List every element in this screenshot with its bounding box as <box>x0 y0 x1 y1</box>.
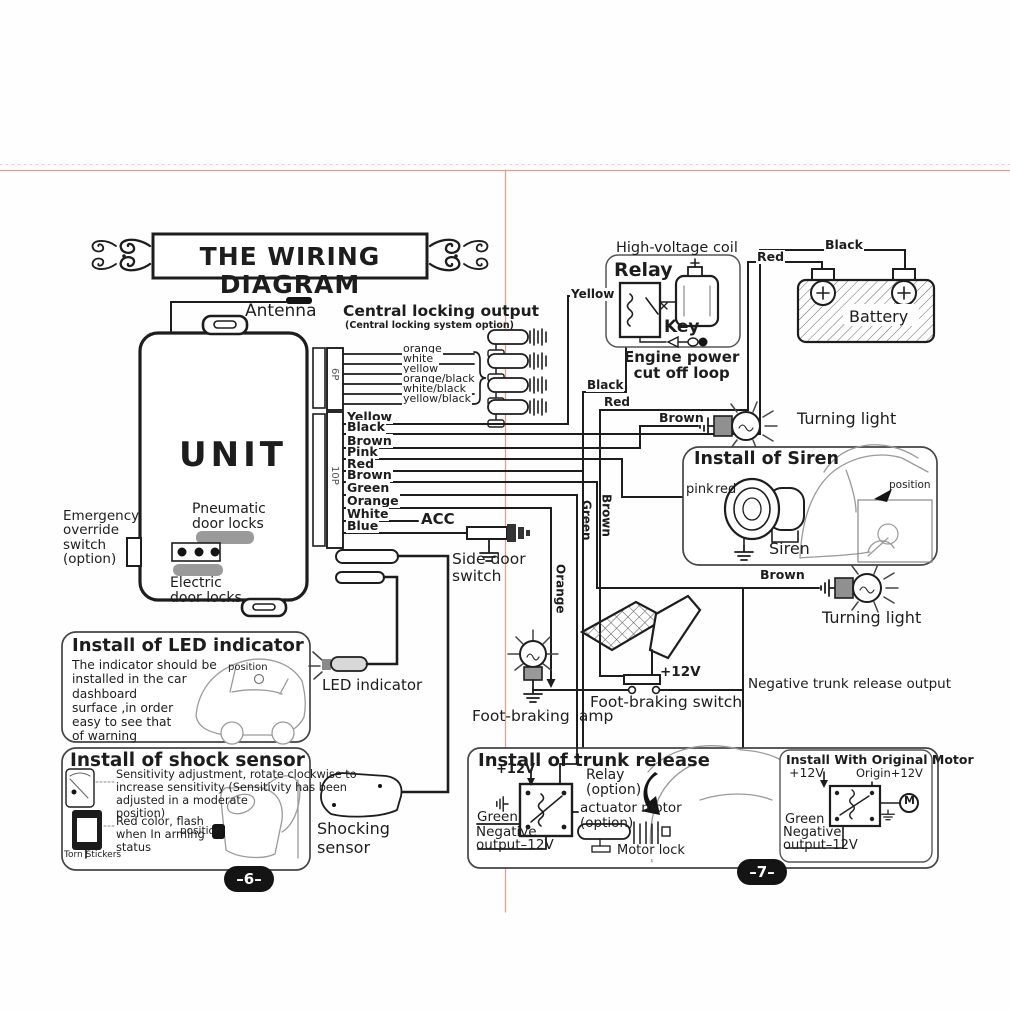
orig-origin: Origin+12V <box>856 767 923 780</box>
trunk-negative: Negative output–12V <box>476 826 554 852</box>
antenna-label: Antenna <box>245 302 317 321</box>
shock-sensitivity: Sensitivity adjustment, rotate clockwise… <box>116 769 357 821</box>
central-locking-subheading: (Central locking system option) <box>345 321 514 332</box>
foot-v12: +12V <box>660 665 701 680</box>
battery-icon <box>798 269 934 342</box>
siren-position: position <box>889 480 931 492</box>
acc-label: ACC <box>420 511 456 528</box>
trunk-output-label: Negative trunk release output <box>748 677 951 692</box>
foot-lamp-label: Foot-braking lamp <box>472 708 613 725</box>
emergency-label: Emergency override switch (option) <box>63 509 139 567</box>
led-body: The indicator should be installed in the… <box>72 658 217 744</box>
battery-red-label: Red <box>756 250 785 264</box>
harness-black: Black <box>346 420 386 434</box>
orig-motor-m: M <box>904 795 914 807</box>
side-door-switch-label: Side door switch <box>452 551 526 585</box>
tl-bottom-brown: Brown <box>759 568 806 582</box>
orig-v12: +12V <box>789 766 824 780</box>
battery-black-label: Black <box>824 238 864 252</box>
tag-yellow: Yellow <box>570 288 615 301</box>
page-title: THE WIRING DIAGRAM <box>160 243 420 299</box>
led-position: position <box>228 662 268 673</box>
shock-position: position <box>180 826 222 838</box>
battery-label: Battery <box>849 308 908 326</box>
trunk-actuator-label: actuator motor (option) <box>580 801 682 831</box>
siren-red: red <box>715 483 736 498</box>
tag-orange-vert: Orange <box>553 564 566 614</box>
tag-green-vert: Green <box>579 500 592 541</box>
tl-bottom-label: Turning light <box>822 609 921 627</box>
page-number-right: –7– <box>737 859 787 885</box>
tag-black: Black <box>586 379 624 392</box>
led-indicator-label: LED indicator <box>322 677 422 694</box>
harness-blue: Blue <box>346 519 379 533</box>
siren-heading: Install of Siren <box>694 450 839 470</box>
connector-10p-label: 10P <box>329 466 340 485</box>
engine-loop-label: Engine power cut off loop <box>624 350 739 382</box>
tag-red: Red <box>603 396 631 409</box>
siren-pink: pink <box>686 483 714 498</box>
wire-pink <box>343 459 729 497</box>
key-label: Key <box>664 318 700 337</box>
diagram-artwork <box>0 0 1010 1010</box>
turning-light-bottom-icon <box>821 564 898 612</box>
orig-negative: Negative output–12V <box>783 827 858 852</box>
siren-label: Siren <box>769 540 810 558</box>
electric-label: Electric door locks <box>170 576 242 605</box>
central-locking-heading: Central locking output <box>343 303 539 320</box>
shock-torn: Torn Stickers <box>64 850 121 860</box>
trunk-green: Green <box>477 810 518 825</box>
wire-brown-1 <box>343 426 698 448</box>
page-number-left: –6– <box>224 866 274 892</box>
pneumatic-label: Pneumatic door locks <box>192 502 266 531</box>
led-indicator-icon <box>309 577 397 679</box>
unit-label: UNIT <box>179 436 287 474</box>
tag-brown-vert: Brown <box>599 494 612 537</box>
shocking-sensor-label: Shocking sensor <box>317 819 390 857</box>
tl-top-label: Turning light <box>797 410 896 428</box>
hv-coil-label: High-voltage coil <box>616 240 738 256</box>
tl-top-brown: Brown <box>658 411 705 425</box>
trunk-v12: +12V <box>496 763 535 778</box>
connector-6p-label: 6P <box>329 368 340 380</box>
cl-wire-yellow-black: yellow/black <box>402 393 472 405</box>
trunk-relay-label: Relay (option) <box>586 768 641 799</box>
led-heading: Install of LED indicator <box>72 636 304 656</box>
wiring-diagram-page: THE WIRING DIAGRAM Antenna Central locki… <box>0 0 1010 1010</box>
relay-label: Relay <box>614 260 673 281</box>
motor-lock-label: Motor lock <box>617 844 685 859</box>
